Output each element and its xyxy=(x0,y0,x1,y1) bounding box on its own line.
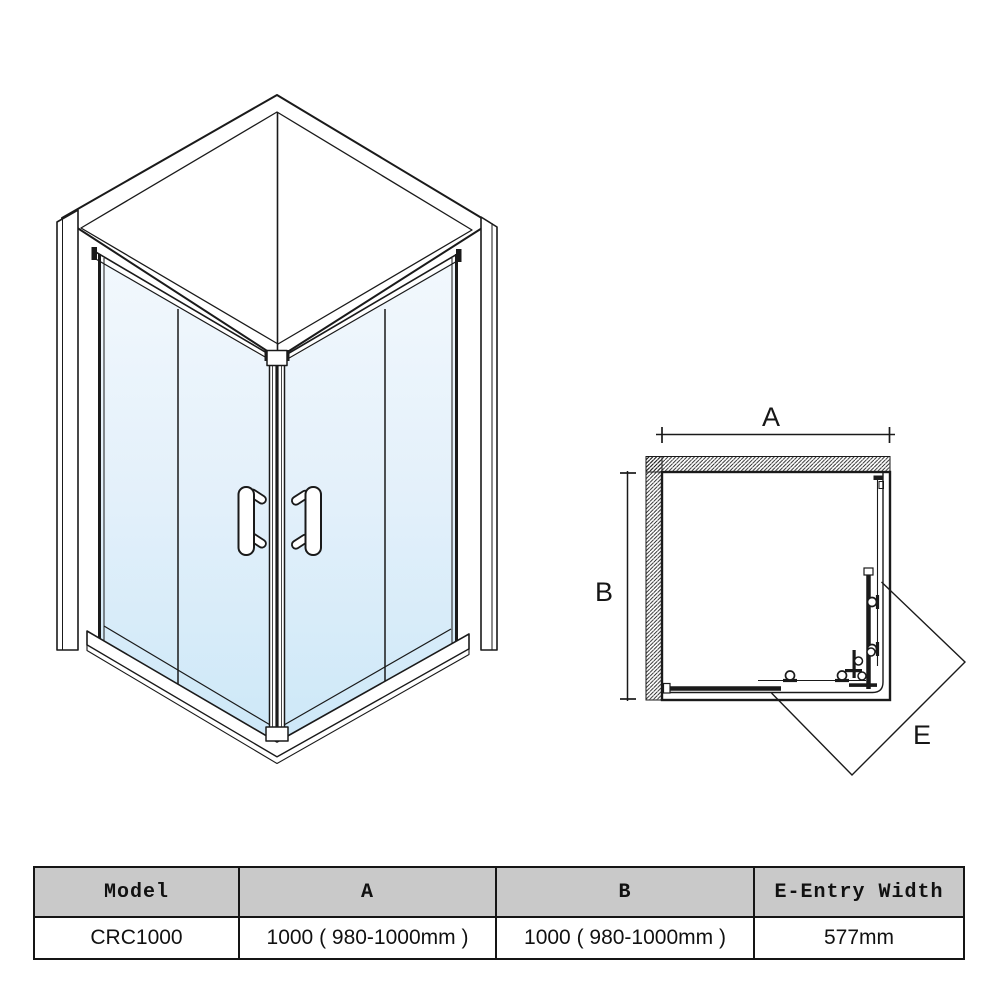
cell-a: 1000 ( 980-1000mm ) xyxy=(239,917,496,959)
iso-view xyxy=(57,95,497,764)
wall-top xyxy=(646,457,890,473)
spec-table-data-row: CRC1000 1000 ( 980-1000mm ) 1000 ( 980-1… xyxy=(34,917,964,959)
spec-table: Model A B E-Entry Width CRC1000 1000 ( 9… xyxy=(33,866,965,960)
entry-e-label: E xyxy=(913,720,931,750)
header-b: B xyxy=(496,867,754,917)
product-diagram-page: A B E Model A B E-Entry Width xyxy=(0,0,1001,1001)
header-entry-width: E-Entry Width xyxy=(754,867,964,917)
spec-table-header-row: Model A B E-Entry Width xyxy=(34,867,964,917)
top-track-bracket xyxy=(874,476,883,481)
dimension-b: B xyxy=(595,471,636,701)
right-wall-post xyxy=(481,217,497,650)
plan-view: A B E xyxy=(595,402,965,775)
header-a: A xyxy=(239,867,496,917)
enclosure-frame xyxy=(662,472,890,700)
shower-enclosure-drawing: A B E xyxy=(0,0,1001,860)
header-model: Model xyxy=(34,867,239,917)
cell-model: CRC1000 xyxy=(34,917,239,959)
left-wall-post xyxy=(57,210,78,650)
dim-a-label: A xyxy=(762,402,780,432)
dim-b-label: B xyxy=(595,577,613,607)
corner-post-foot xyxy=(266,727,288,741)
corner-post-cap xyxy=(267,351,287,366)
dimension-a: A xyxy=(656,402,895,443)
wall-left xyxy=(646,457,662,701)
cell-b: 1000 ( 980-1000mm ) xyxy=(496,917,754,959)
cell-entry-width: 577mm xyxy=(754,917,964,959)
